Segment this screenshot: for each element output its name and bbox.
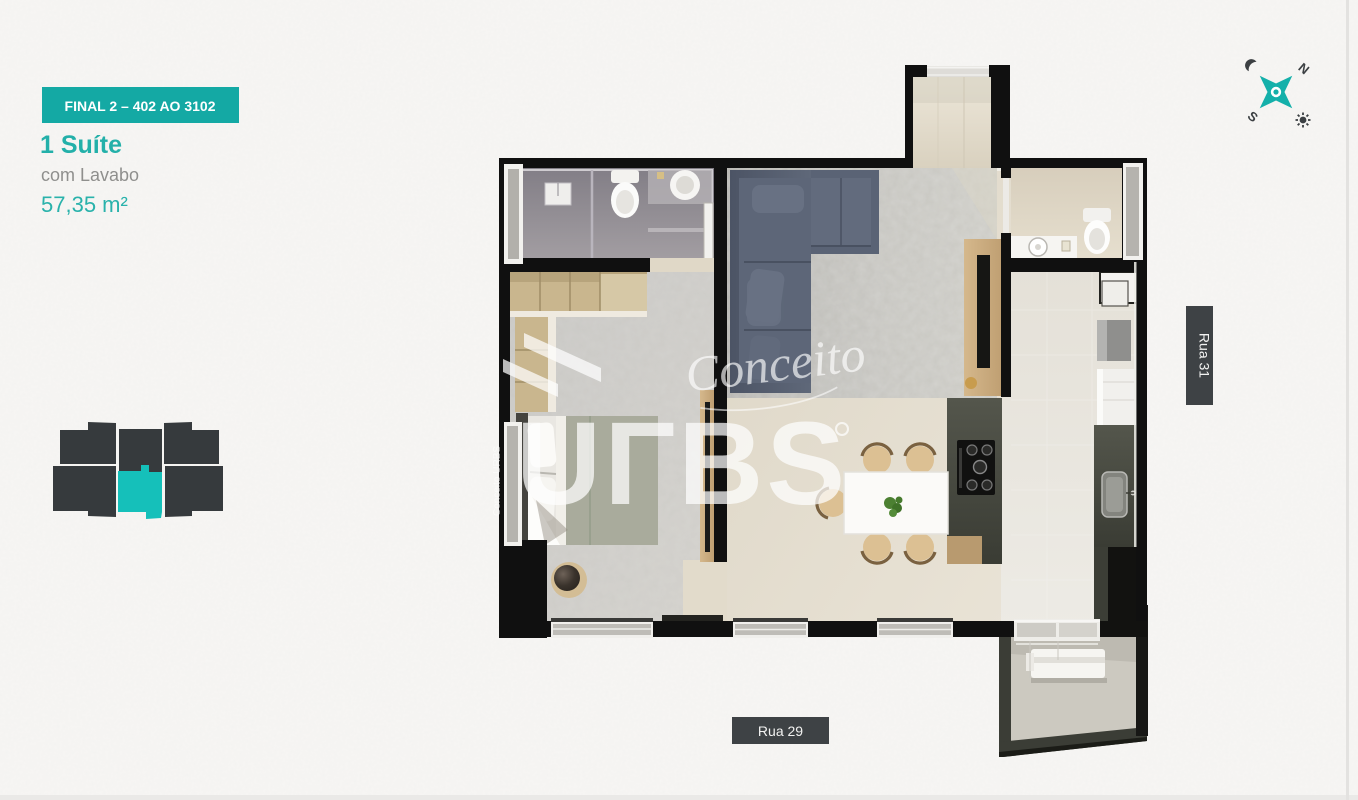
svg-text:com Lavabo: com Lavabo <box>41 165 139 185</box>
svg-text:1 Suíte: 1 Suíte <box>40 131 122 159</box>
svg-text:57,35 m²: 57,35 m² <box>41 192 128 217</box>
svg-text:Rua 29: Rua 29 <box>758 723 803 739</box>
svg-text:FINAL 2 – 402 AO 3102: FINAL 2 – 402 AO 3102 <box>65 98 216 114</box>
svg-text:Conceito URBS: Conceito URBS <box>492 446 503 516</box>
svg-text:Rua 31: Rua 31 <box>1197 333 1213 378</box>
svg-text:UΓBS: UΓBS <box>516 398 848 530</box>
